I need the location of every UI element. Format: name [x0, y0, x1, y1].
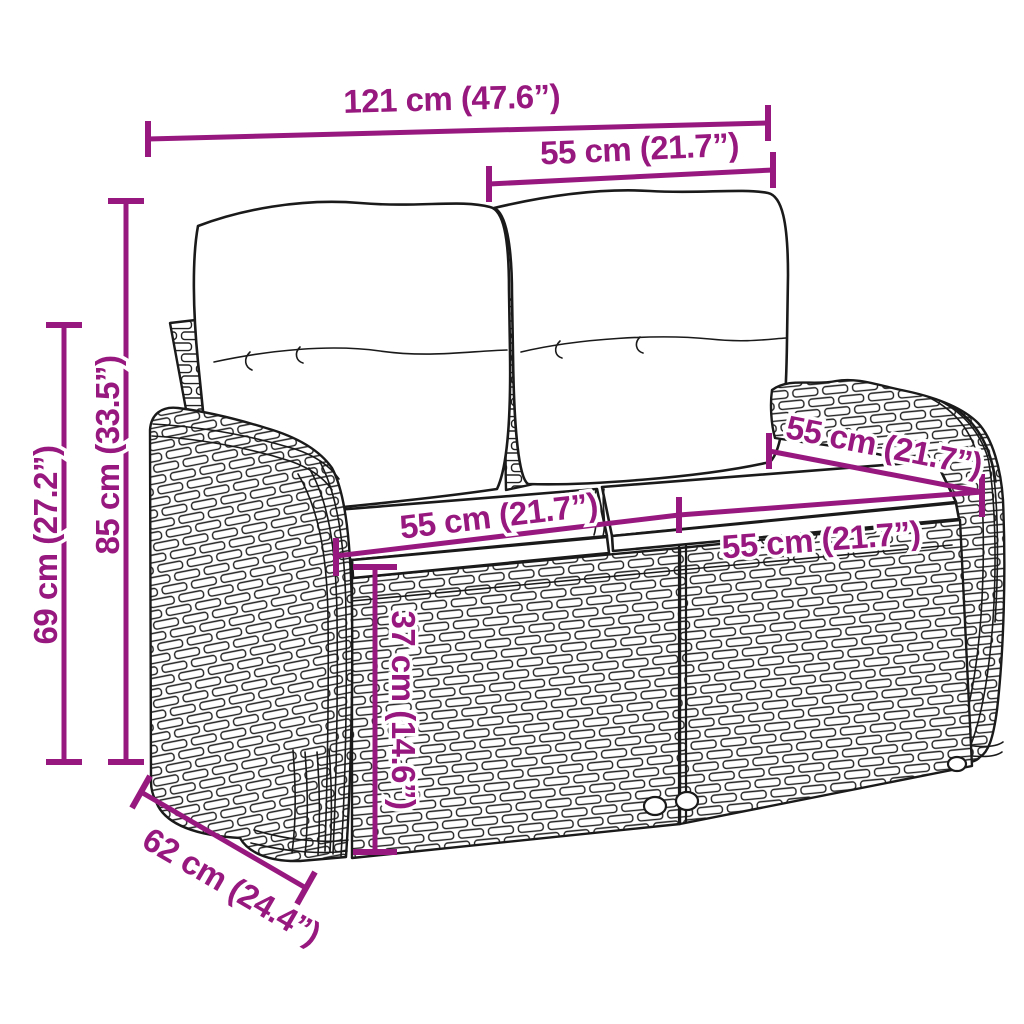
left-armrest [150, 408, 352, 861]
dim-overall-height: 85 cm (33.5”) [89, 201, 144, 762]
foot [644, 797, 666, 815]
foot [948, 757, 966, 771]
dim-overall-width-label: 121 cm (47.6”) [343, 77, 561, 120]
dim-seat-height-label: 37 cm (14.6”) [385, 611, 422, 810]
dimension-diagram: 121 cm (47.6”) 55 cm (21.7”) 85 cm (33.5… [0, 0, 1024, 1024]
dim-overall-height-label: 85 cm (33.5”) [89, 356, 126, 555]
foot [676, 792, 698, 810]
bench-dimension-svg: 121 cm (47.6”) 55 cm (21.7”) 85 cm (33.5… [0, 0, 1024, 1024]
dim-armrest-height-label: 69 cm (27.2”) [27, 446, 64, 645]
back-cushion-right [494, 190, 788, 484]
dim-armrest-height: 69 cm (27.2”) [27, 325, 82, 762]
dim-backrest-section-width-label: 55 cm (21.7”) [539, 126, 739, 172]
